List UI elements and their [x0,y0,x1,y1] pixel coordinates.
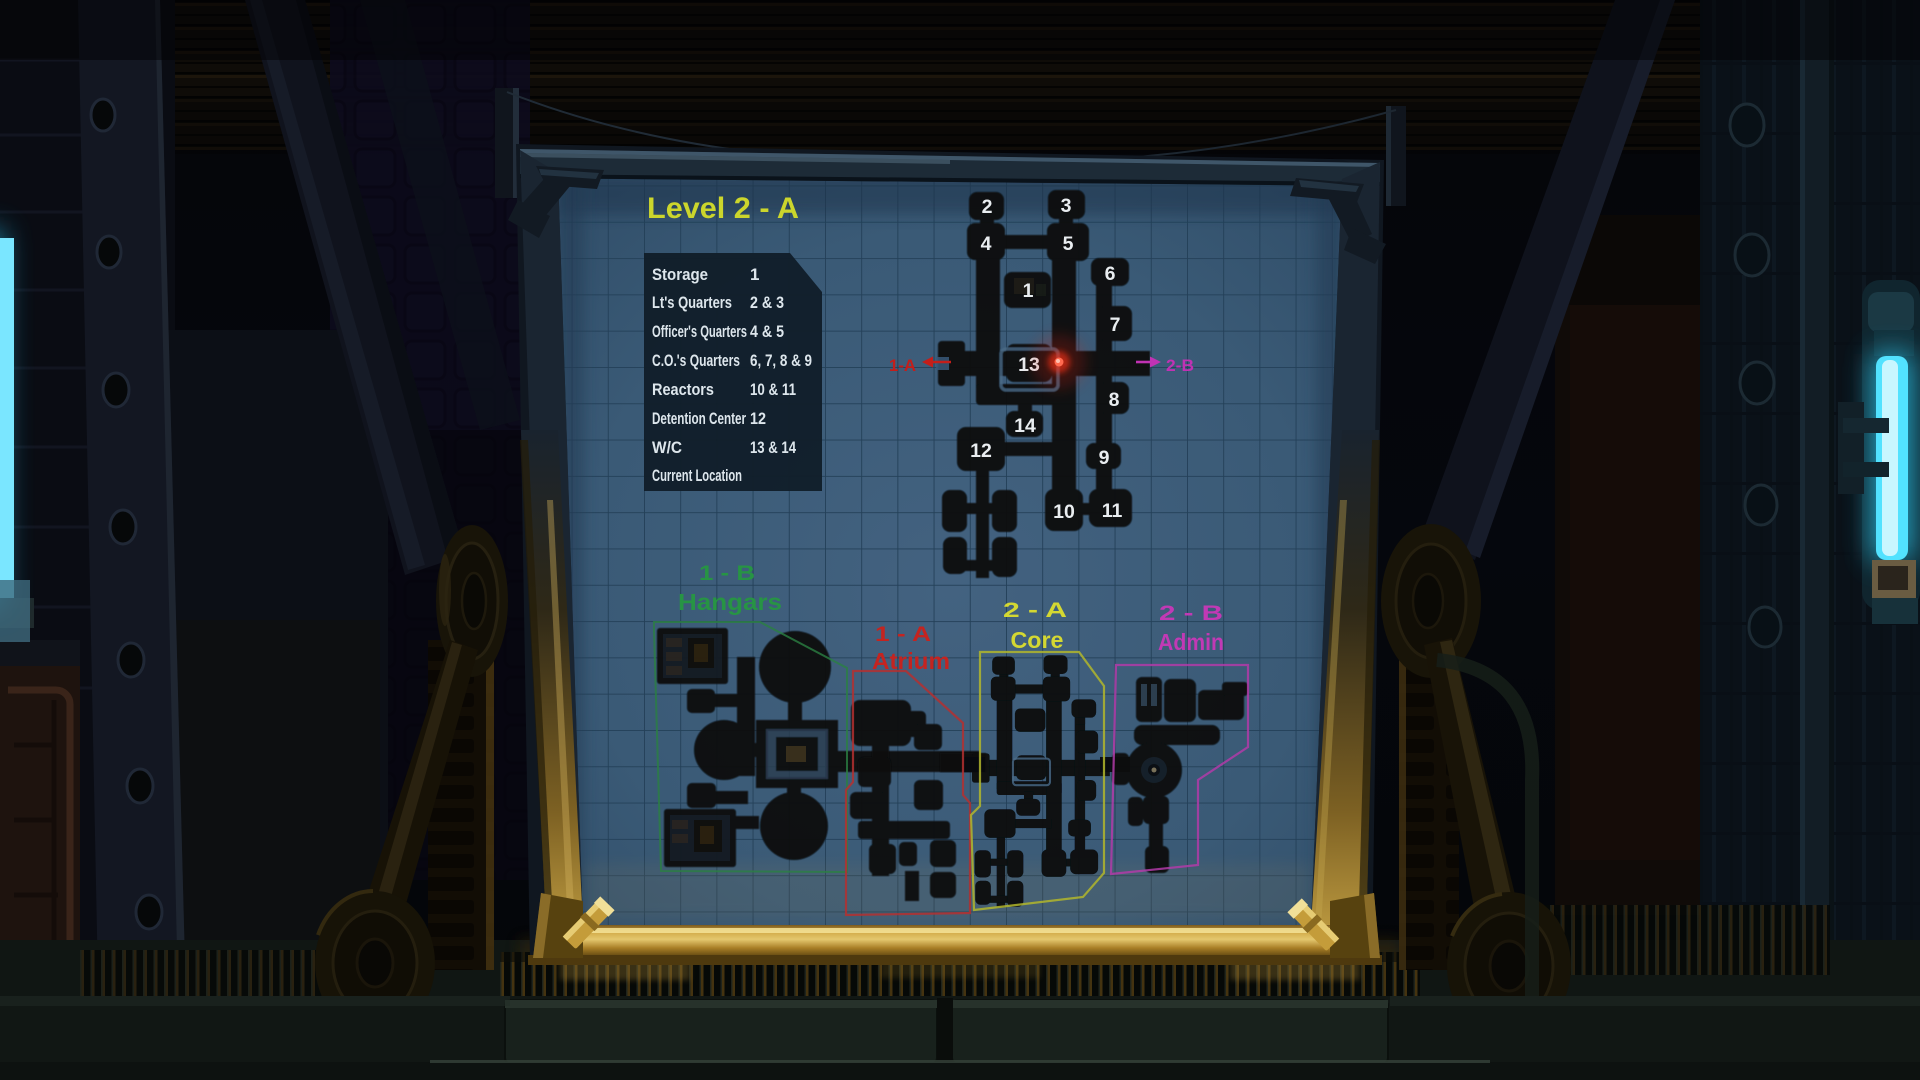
svg-text:2 - B: 2 - B [1159,602,1223,625]
svg-text:13 & 14: 13 & 14 [750,438,796,457]
svg-text:1 - B: 1 - B [699,562,755,585]
svg-text:Admin: Admin [1158,629,1224,655]
svg-text:4 & 5: 4 & 5 [750,322,784,341]
svg-text:Detention Center: Detention Center [652,409,746,428]
svg-text:14: 14 [1014,415,1036,437]
svg-text:1: 1 [750,265,759,284]
svg-text:1: 1 [1023,280,1034,302]
svg-text:Current Location: Current Location [652,466,742,485]
svg-text:3: 3 [1061,195,1072,217]
svg-text:Lt's Quarters: Lt's Quarters [652,293,732,312]
svg-text:10 & 11: 10 & 11 [750,380,796,399]
svg-text:Level 2 - A: Level 2 - A [647,192,799,225]
svg-text:6, 7, 8 & 9: 6, 7, 8 & 9 [750,351,812,370]
svg-text:C.O.'s Quarters: C.O.'s Quarters [652,351,740,370]
svg-text:1 - A: 1 - A [875,623,931,646]
svg-text:Atrium: Atrium [872,648,950,674]
svg-text:1-A: 1-A [889,356,916,375]
svg-text:11: 11 [1102,500,1123,522]
svg-text:7: 7 [1110,314,1121,336]
svg-text:4: 4 [981,233,992,255]
svg-text:8: 8 [1109,389,1120,411]
svg-text:Core: Core [1011,627,1064,653]
svg-text:10: 10 [1053,501,1075,523]
svg-text:2-B: 2-B [1166,356,1194,375]
svg-text:2 - A: 2 - A [1003,599,1067,622]
svg-text:2 & 3: 2 & 3 [750,293,784,312]
svg-text:W/C: W/C [652,438,682,457]
svg-text:12: 12 [970,440,992,462]
svg-text:Storage: Storage [652,265,708,284]
svg-text:9: 9 [1099,447,1110,469]
svg-text:Reactors: Reactors [652,380,714,399]
svg-text:2: 2 [982,196,993,218]
svg-text:12: 12 [750,409,766,428]
svg-text:6: 6 [1105,263,1116,285]
svg-text:5: 5 [1063,233,1074,255]
svg-text:Hangars: Hangars [678,589,782,615]
svg-text:Officer's Quarters: Officer's Quarters [652,322,747,341]
